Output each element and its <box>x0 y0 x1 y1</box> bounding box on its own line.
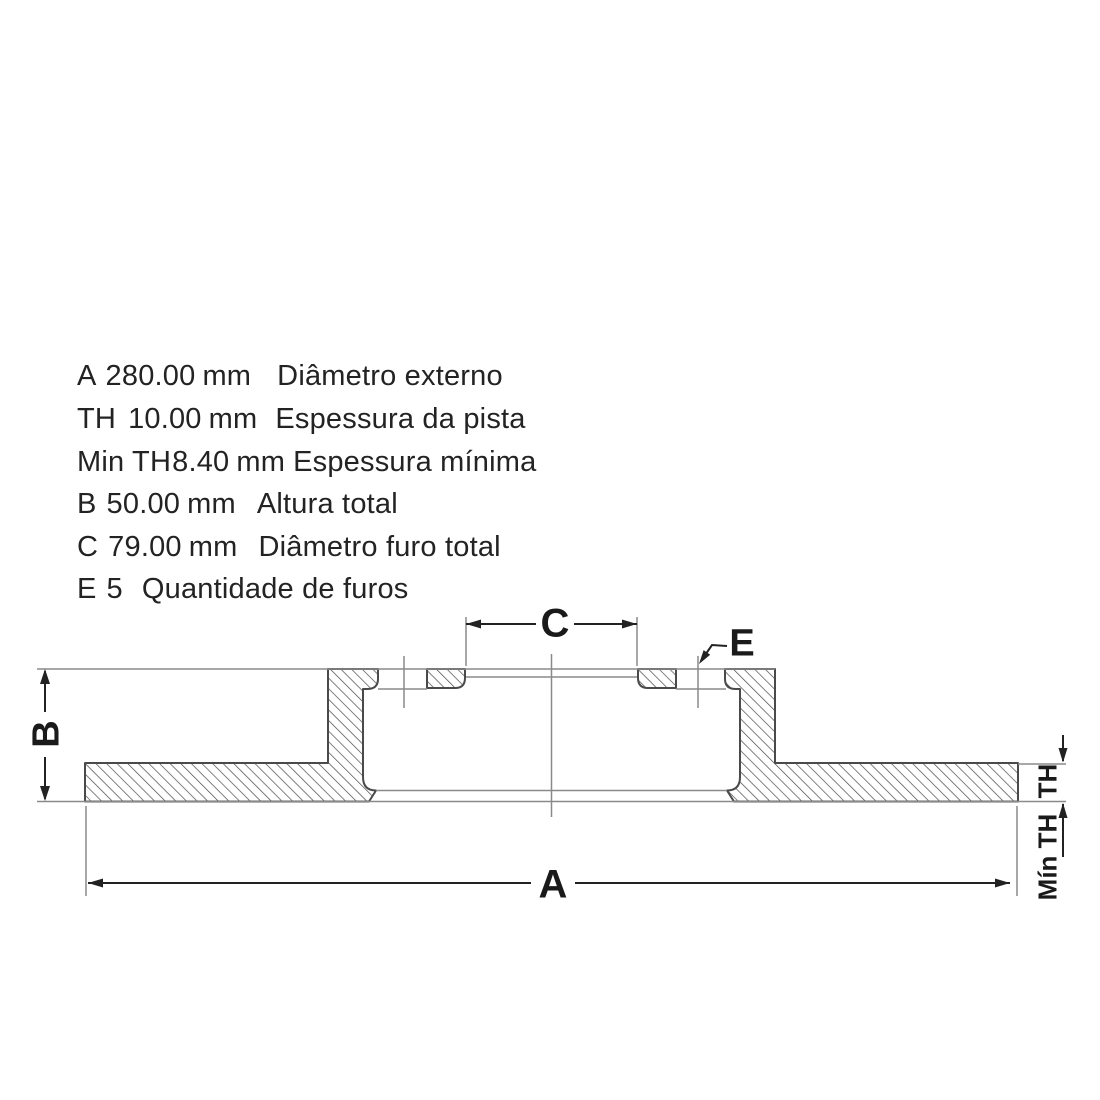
label-backgrounds <box>31 604 575 900</box>
arrowheads <box>40 620 1068 888</box>
b-dimension-label: B <box>26 720 68 747</box>
b-top-arrow <box>40 669 50 684</box>
edge-lines <box>37 617 1066 896</box>
th-down-arrow <box>1059 748 1068 763</box>
a-dimension-label: A <box>539 862 568 906</box>
e-arrow <box>699 650 710 664</box>
left-ring-and-hub-wall <box>85 669 378 802</box>
b-bottom-arrow <box>40 786 50 801</box>
brake-disc-cross-section-drawing: A B C E TH Mín TH <box>0 0 1100 1100</box>
e-dimension-label: E <box>729 623 754 665</box>
min-th-dimension-label: Mín TH <box>1032 814 1062 901</box>
a-right-arrow <box>995 879 1010 888</box>
th-dimension-label: TH <box>1032 764 1062 799</box>
a-left-arrow <box>88 879 103 888</box>
page: A 280.00 mm Diâmetro externo TH 10.00 mm… <box>0 0 1100 1100</box>
c-right-arrow <box>622 620 637 629</box>
hub-face-left-block <box>427 669 465 688</box>
c-dimension-label: C <box>541 601 570 645</box>
hub-face-right-block <box>638 669 676 688</box>
right-ring-and-hub-wall <box>725 669 1018 802</box>
dimension-lines <box>45 624 1063 883</box>
c-left-arrow <box>466 620 481 629</box>
